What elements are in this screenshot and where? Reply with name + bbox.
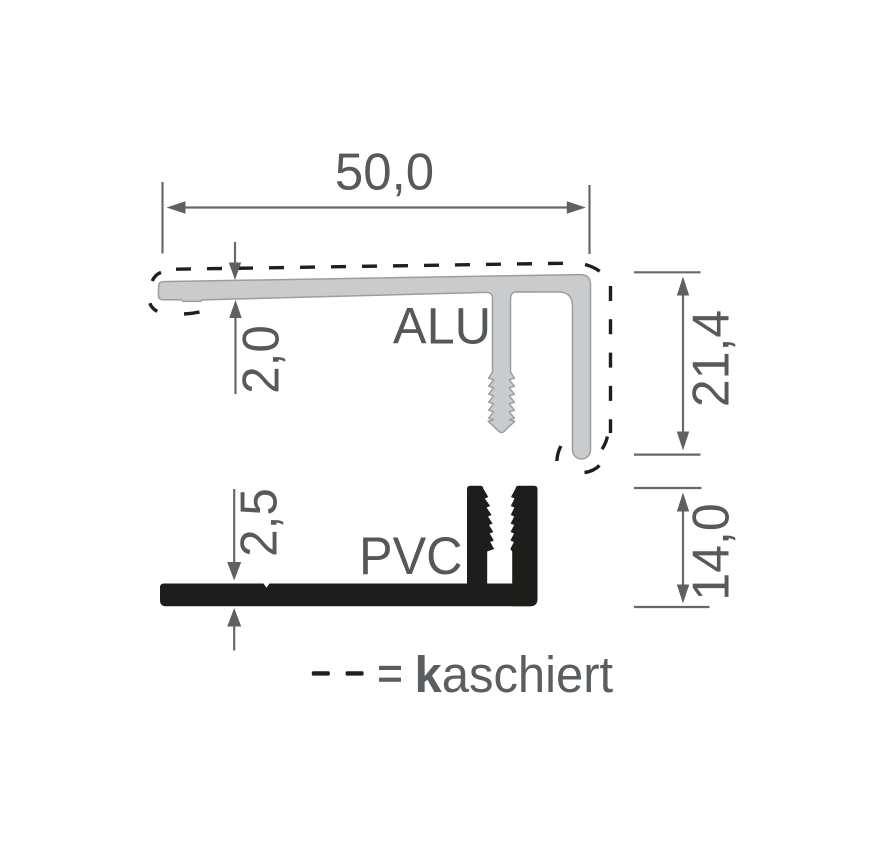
svg-text:2,5: 2,5	[229, 488, 287, 557]
svg-text:50,0: 50,0	[335, 142, 434, 201]
svg-text:kaschiert: kaschiert	[415, 646, 614, 703]
svg-text:2,0: 2,0	[231, 325, 289, 394]
svg-text:14,0: 14,0	[682, 503, 740, 600]
svg-text:21,4: 21,4	[682, 310, 740, 407]
svg-text:PVC: PVC	[359, 526, 463, 585]
svg-text:ALU: ALU	[393, 297, 491, 354]
